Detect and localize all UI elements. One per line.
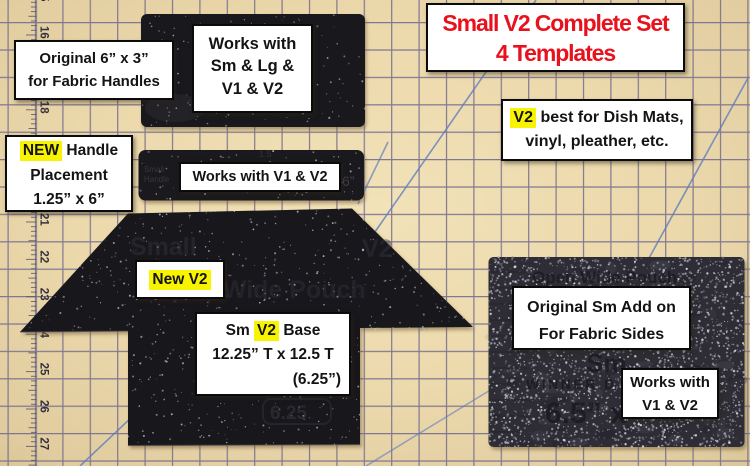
svg-text:1.5: 1.5 xyxy=(259,149,272,159)
svg-text:Handle: Handle xyxy=(144,175,170,184)
svg-text:25: 25 xyxy=(38,363,50,376)
svg-text:V2: V2 xyxy=(362,235,393,263)
svg-text:6”: 6” xyxy=(342,173,355,189)
svg-text:WINNER D: WINNER D xyxy=(526,376,617,392)
svg-text:6.25: 6.25 xyxy=(270,403,307,424)
svg-text:21: 21 xyxy=(38,213,50,226)
svg-text:27: 27 xyxy=(38,437,50,450)
svg-text:22: 22 xyxy=(38,250,50,263)
svg-text:26: 26 xyxy=(38,400,50,413)
svg-text:Small: Small xyxy=(130,233,197,261)
svg-text:16: 16 xyxy=(38,26,50,39)
svg-text:6.5” x: 6.5” x xyxy=(545,397,627,430)
svg-text:Open Wide Pouch: Open Wide Pouch xyxy=(532,268,677,287)
svg-text:23: 23 xyxy=(38,288,50,301)
svg-text:18: 18 xyxy=(38,101,50,114)
svg-text:Small: Small xyxy=(144,165,164,174)
